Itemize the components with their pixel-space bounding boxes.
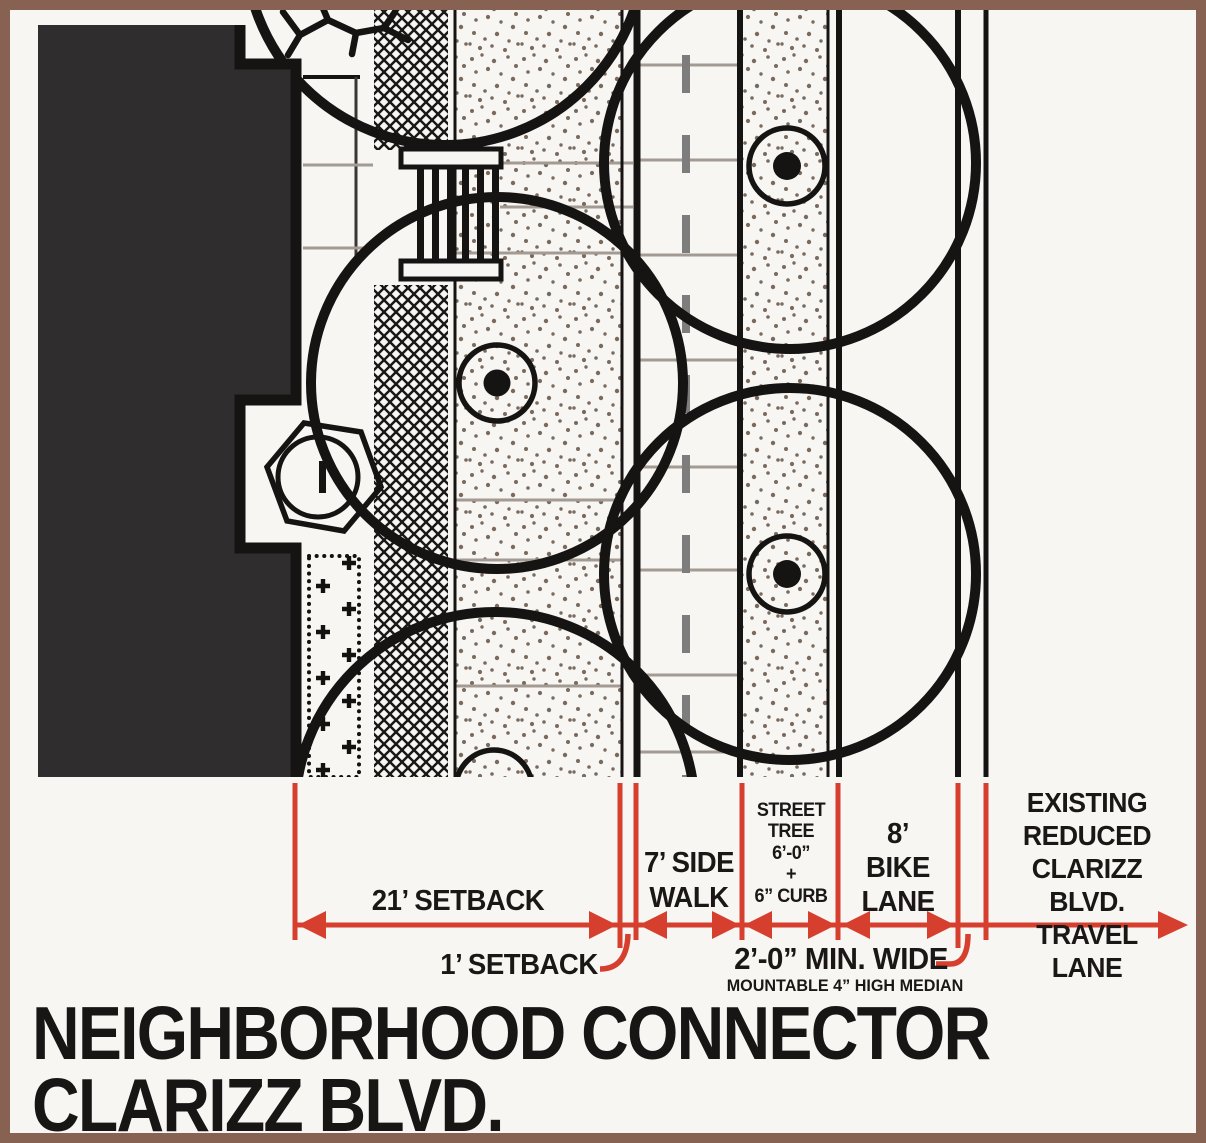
arrow-left-icon xyxy=(298,911,326,939)
setback1-leader-line xyxy=(600,934,628,969)
label-7ft-sidewalk: 7’ SIDE WALK xyxy=(644,846,734,917)
label-8ft-bike-lane: 8’ BIKE LANE xyxy=(861,818,934,920)
label-travel-lane: EXISTING REDUCED CLARIZZ BLVD. TRAVEL LA… xyxy=(1023,786,1151,984)
label-1ft-setback: 1’ SETBACK xyxy=(440,948,598,982)
building-footprint xyxy=(38,25,296,777)
paver-grid xyxy=(303,77,373,258)
label-21ft-setback: 21’ SETBACK xyxy=(372,884,544,918)
arrow-right-icon xyxy=(589,911,617,939)
arrow-right-icon xyxy=(1158,911,1188,939)
label-median-width: 2’-0” MIN. WIDE xyxy=(734,941,948,978)
arrow-left-icon xyxy=(744,911,772,939)
figure-title-line2: CLARIZZ BLVD. xyxy=(32,1062,503,1143)
planting-strip-crosshatch xyxy=(374,10,448,777)
arrow-right-icon xyxy=(808,911,836,939)
street-section-plan-figure: 21’ SETBACK 7’ SIDE WALK STREET TREE 6’-… xyxy=(0,0,1206,1143)
label-street-tree-curb: STREET TREE 6’-0” + 6” CURB xyxy=(755,800,828,907)
